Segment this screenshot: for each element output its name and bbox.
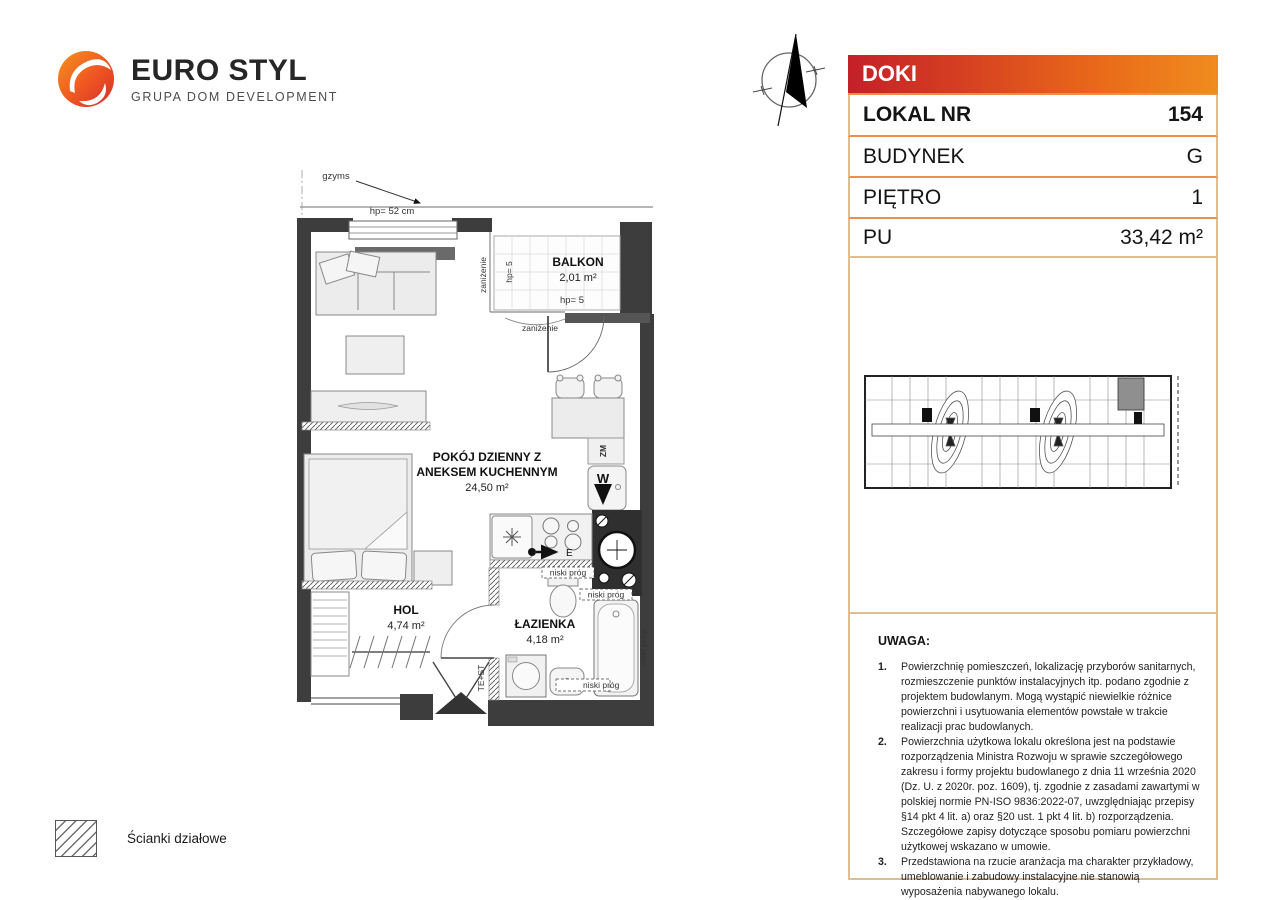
brand-subtitle: GRUPA DOM DEVELOPMENT: [131, 90, 338, 104]
hp5-label-v: hp= 5: [504, 261, 514, 283]
row-value: 154: [1168, 103, 1203, 127]
partition-hatch-1: [302, 422, 430, 430]
row-value: 33,42 m²: [1120, 226, 1203, 250]
svg-text:niski próg: niski próg: [638, 630, 648, 667]
note-item: 1. Powierzchnię pomieszczeń, lokalizację…: [878, 660, 1202, 735]
hol-label: HOL: [393, 603, 418, 617]
balkon-label: BALKON: [552, 255, 603, 269]
te-st-label: TE+ST: [476, 665, 486, 692]
row-label: LOKAL NR: [863, 103, 971, 127]
floorplan-sheet: EURO STYL GRUPA DOM DEVELOPMENT gzyms hp: [0, 0, 1273, 900]
pokoj-area: 24,50 m²: [465, 482, 509, 494]
hol-area: 4,74 m²: [387, 620, 425, 632]
balcony-sill: [565, 313, 650, 323]
row-pietro: PIĘTRO 1: [848, 178, 1218, 219]
row-value: 1: [1191, 186, 1203, 210]
legend-partition-walls: Ścianki działowe: [55, 820, 227, 857]
washing-machine: [506, 655, 546, 697]
hall-cabinet: [311, 592, 349, 676]
partition-hatch-4: [489, 568, 499, 605]
notes-cell: UWAGA: 1. Powierzchnię pomieszczeń, loka…: [848, 612, 1218, 880]
gzyms-label: gzyms: [322, 171, 350, 182]
entrance-arrow: [435, 692, 487, 714]
entrance-door: TE+ST: [433, 662, 489, 714]
balkon-area: 2,01 m²: [559, 272, 597, 284]
row-budynek: BUDYNEK G: [848, 137, 1218, 178]
vent-w-box: W: [588, 466, 626, 510]
bed: [304, 454, 412, 585]
brand-logo: EURO STYL GRUPA DOM DEVELOPMENT: [55, 48, 338, 110]
project-header: DOKI: [848, 55, 1218, 95]
svg-text:niski próg: niski próg: [583, 680, 620, 690]
zanizenie-label-v: zaniżenie: [478, 257, 488, 293]
partition-hatch-5: [489, 658, 499, 700]
svg-text:niski próg: niski próg: [550, 568, 587, 578]
coffee-table: [346, 336, 404, 374]
note-item: 3. Przedstawiona na rzucie aranżacja ma …: [878, 855, 1202, 900]
project-name: DOKI: [862, 61, 917, 87]
hp52-label: hp= 52 cm: [370, 206, 415, 217]
e-label: E: [566, 548, 573, 559]
hp5-label-h: hp= 5: [560, 295, 584, 306]
zm-label: ZM: [598, 445, 608, 457]
building-key-plan: [862, 370, 1184, 494]
unit-floorplan: gzyms hp= 52 cm: [290, 160, 660, 740]
row-value: G: [1187, 145, 1203, 169]
north-compass-icon: [745, 28, 835, 128]
pokoj-label-2: ANEKSEM KUCHENNYM: [416, 465, 557, 479]
hatch-swatch-icon: [55, 820, 97, 857]
note-item: 2. Powierzchnia użytkowa lokalu określon…: [878, 735, 1202, 855]
legend-label: Ścianki działowe: [127, 831, 227, 846]
dining-set: [552, 375, 624, 438]
row-lokal-nr: LOKAL NR 154: [848, 95, 1218, 137]
sofa: [316, 251, 436, 315]
kitchen-counter: E: [490, 514, 592, 560]
eurostyl-flame-icon: [55, 48, 117, 110]
bathroom-door-swing: [441, 605, 494, 658]
w-label: W: [597, 471, 610, 486]
dishwasher: ZM: [588, 438, 624, 464]
notes-title: UWAGA:: [878, 634, 1202, 648]
row-label: BUDYNEK: [863, 145, 965, 169]
row-label: PIĘTRO: [863, 186, 941, 210]
brand-name: EURO STYL: [131, 54, 338, 88]
wardrobe: [350, 636, 430, 668]
row-pu: PU 33,42 m²: [848, 219, 1218, 258]
lazienka-label: ŁAZIENKA: [515, 617, 576, 631]
svg-text:niski próg: niski próg: [588, 590, 625, 600]
nightstand: [414, 551, 452, 585]
lazienka-area: 4,18 m²: [526, 634, 564, 646]
toilet: [548, 577, 578, 617]
notes-list: 1. Powierzchnię pomieszczeń, lokalizację…: [878, 660, 1202, 900]
highlighted-unit: [1118, 378, 1144, 410]
sideboard: [311, 391, 426, 422]
utility-shaft: [592, 510, 642, 596]
row-label: PU: [863, 226, 892, 250]
pokoj-label-1: POKÓJ DZIENNY Z: [433, 449, 541, 464]
partition-hatch-2: [302, 581, 432, 589]
